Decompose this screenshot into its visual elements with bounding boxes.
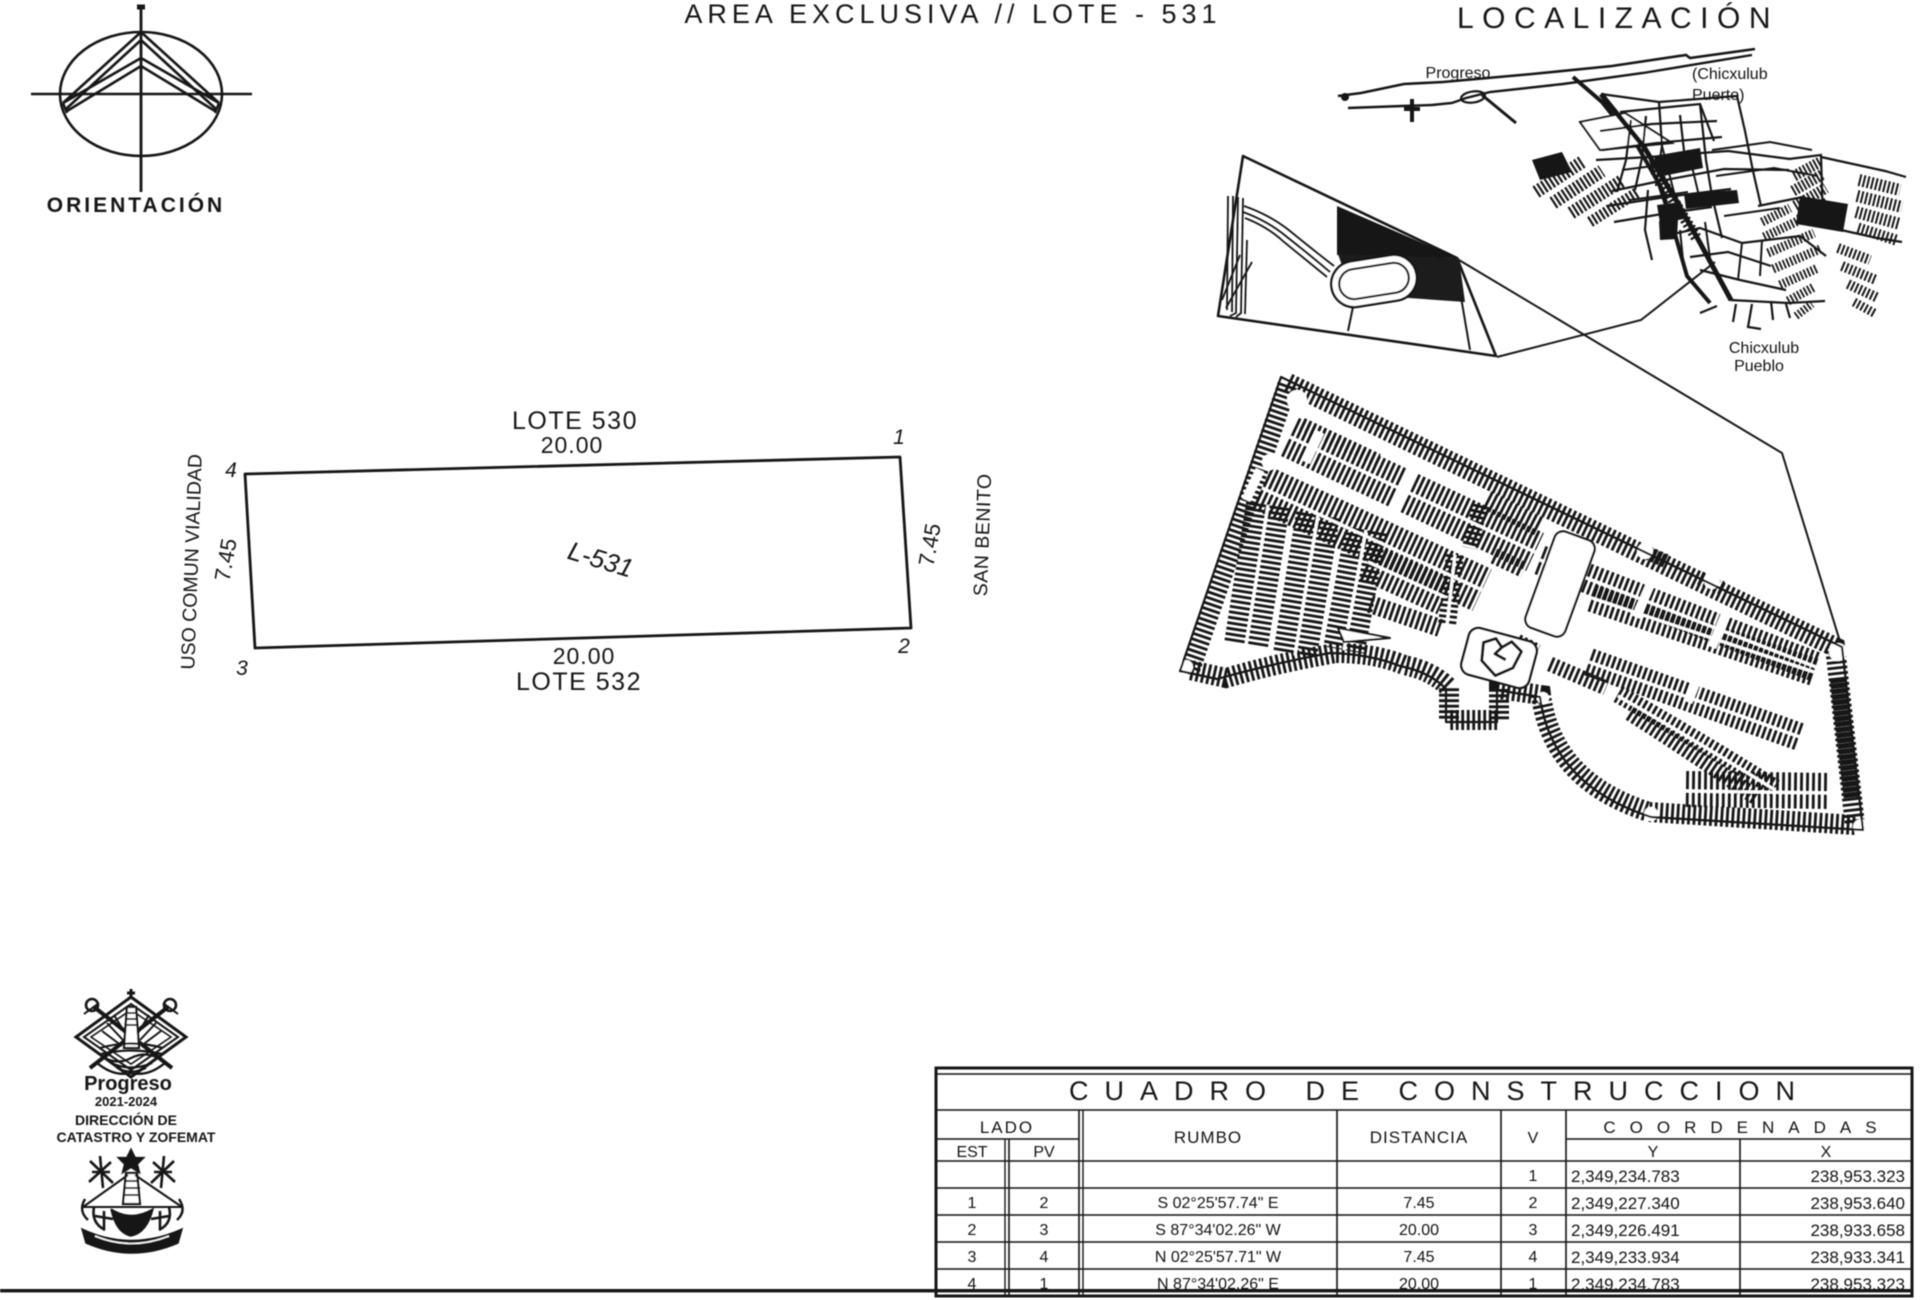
svg-text:Y: Y <box>1648 1144 1659 1161</box>
svg-text:2: 2 <box>897 635 910 658</box>
svg-text:7.45: 7.45 <box>914 521 946 568</box>
svg-text:1: 1 <box>968 1195 977 1212</box>
svg-text:1: 1 <box>893 426 905 449</box>
svg-text:238,933.341: 238,933.341 <box>1810 1248 1905 1267</box>
svg-text:238,933.658: 238,933.658 <box>1810 1221 1905 1240</box>
svg-text:S 02°25'57.74" E: S 02°25'57.74" E <box>1158 1195 1279 1212</box>
svg-text:4: 4 <box>225 459 237 482</box>
svg-text:N 02°25'57.71" W: N 02°25'57.71" W <box>1155 1249 1282 1266</box>
svg-text:SAN BENITO: SAN BENITO <box>970 473 996 596</box>
svg-text:2: 2 <box>1529 1195 1538 1212</box>
svg-text:1: 1 <box>1529 1168 1538 1185</box>
svg-text:ORIENTACIÓN: ORIENTACIÓN <box>47 193 225 217</box>
svg-text:PV: PV <box>1033 1144 1055 1161</box>
svg-text:LOTE 532: LOTE 532 <box>516 668 642 696</box>
svg-text:Pueblo: Pueblo <box>1734 358 1784 375</box>
svg-text:Progreso: Progreso <box>84 1073 172 1095</box>
svg-text:238,953.640: 238,953.640 <box>1810 1194 1905 1213</box>
svg-text:AREA EXCLUSIVA // LOTE - 531: AREA EXCLUSIVA // LOTE - 531 <box>684 0 1221 29</box>
svg-text:20.00: 20.00 <box>553 643 616 669</box>
svg-text:(Chicxulub: (Chicxulub <box>1692 66 1768 83</box>
svg-text:2: 2 <box>1040 1195 1049 1212</box>
svg-text:2,349,226.491: 2,349,226.491 <box>1571 1221 1680 1240</box>
svg-text:3: 3 <box>1040 1222 1049 1239</box>
svg-text:CUADRO DE CONSTRUCCION: CUADRO DE CONSTRUCCION <box>1069 1076 1811 1106</box>
svg-text:S 87°34'02.26" W: S 87°34'02.26" W <box>1155 1222 1281 1239</box>
svg-text:2: 2 <box>968 1222 977 1239</box>
svg-text:3: 3 <box>968 1249 977 1266</box>
svg-text:USO COMUN VIALIDAD: USO COMUN VIALIDAD <box>177 454 207 670</box>
svg-text:CATASTRO Y ZOFEMAT: CATASTRO Y ZOFEMAT <box>57 1129 216 1145</box>
svg-text:V: V <box>1528 1130 1539 1147</box>
svg-text:7.45: 7.45 <box>210 536 242 583</box>
svg-text:Chicxulub: Chicxulub <box>1729 340 1799 357</box>
svg-text:DIRECCIÓN DE: DIRECCIÓN DE <box>75 1111 177 1128</box>
svg-text:2,349,234.783: 2,349,234.783 <box>1571 1167 1680 1186</box>
svg-text:EST: EST <box>956 1144 987 1161</box>
svg-text:RUMBO: RUMBO <box>1174 1128 1242 1147</box>
svg-text:LOCALIZACIÓN: LOCALIZACIÓN <box>1457 2 1779 35</box>
svg-text:LADO: LADO <box>980 1118 1034 1137</box>
svg-text:DISTANCIA: DISTANCIA <box>1370 1128 1468 1147</box>
svg-text:7.45: 7.45 <box>1403 1195 1434 1212</box>
svg-text:4: 4 <box>1040 1249 1049 1266</box>
svg-text:3: 3 <box>1529 1222 1538 1239</box>
svg-text:7.45: 7.45 <box>1403 1249 1434 1266</box>
svg-text:2021-2024: 2021-2024 <box>95 1094 158 1109</box>
svg-text:L-531: L-531 <box>564 535 636 583</box>
svg-text:20.00: 20.00 <box>541 432 604 458</box>
svg-text:20.00: 20.00 <box>1399 1222 1439 1239</box>
svg-text:COORDENADAS: COORDENADAS <box>1603 1118 1890 1137</box>
svg-text:4: 4 <box>1529 1249 1538 1266</box>
svg-text:Progreso: Progreso <box>1426 65 1491 82</box>
svg-text:3: 3 <box>236 657 248 680</box>
svg-text:LOTE 530: LOTE 530 <box>512 407 638 435</box>
svg-text:X: X <box>1821 1144 1832 1161</box>
svg-text:238,953.323: 238,953.323 <box>1810 1167 1905 1186</box>
svg-text:2,349,227.340: 2,349,227.340 <box>1571 1194 1680 1213</box>
svg-text:2,349,233.934: 2,349,233.934 <box>1571 1248 1680 1267</box>
